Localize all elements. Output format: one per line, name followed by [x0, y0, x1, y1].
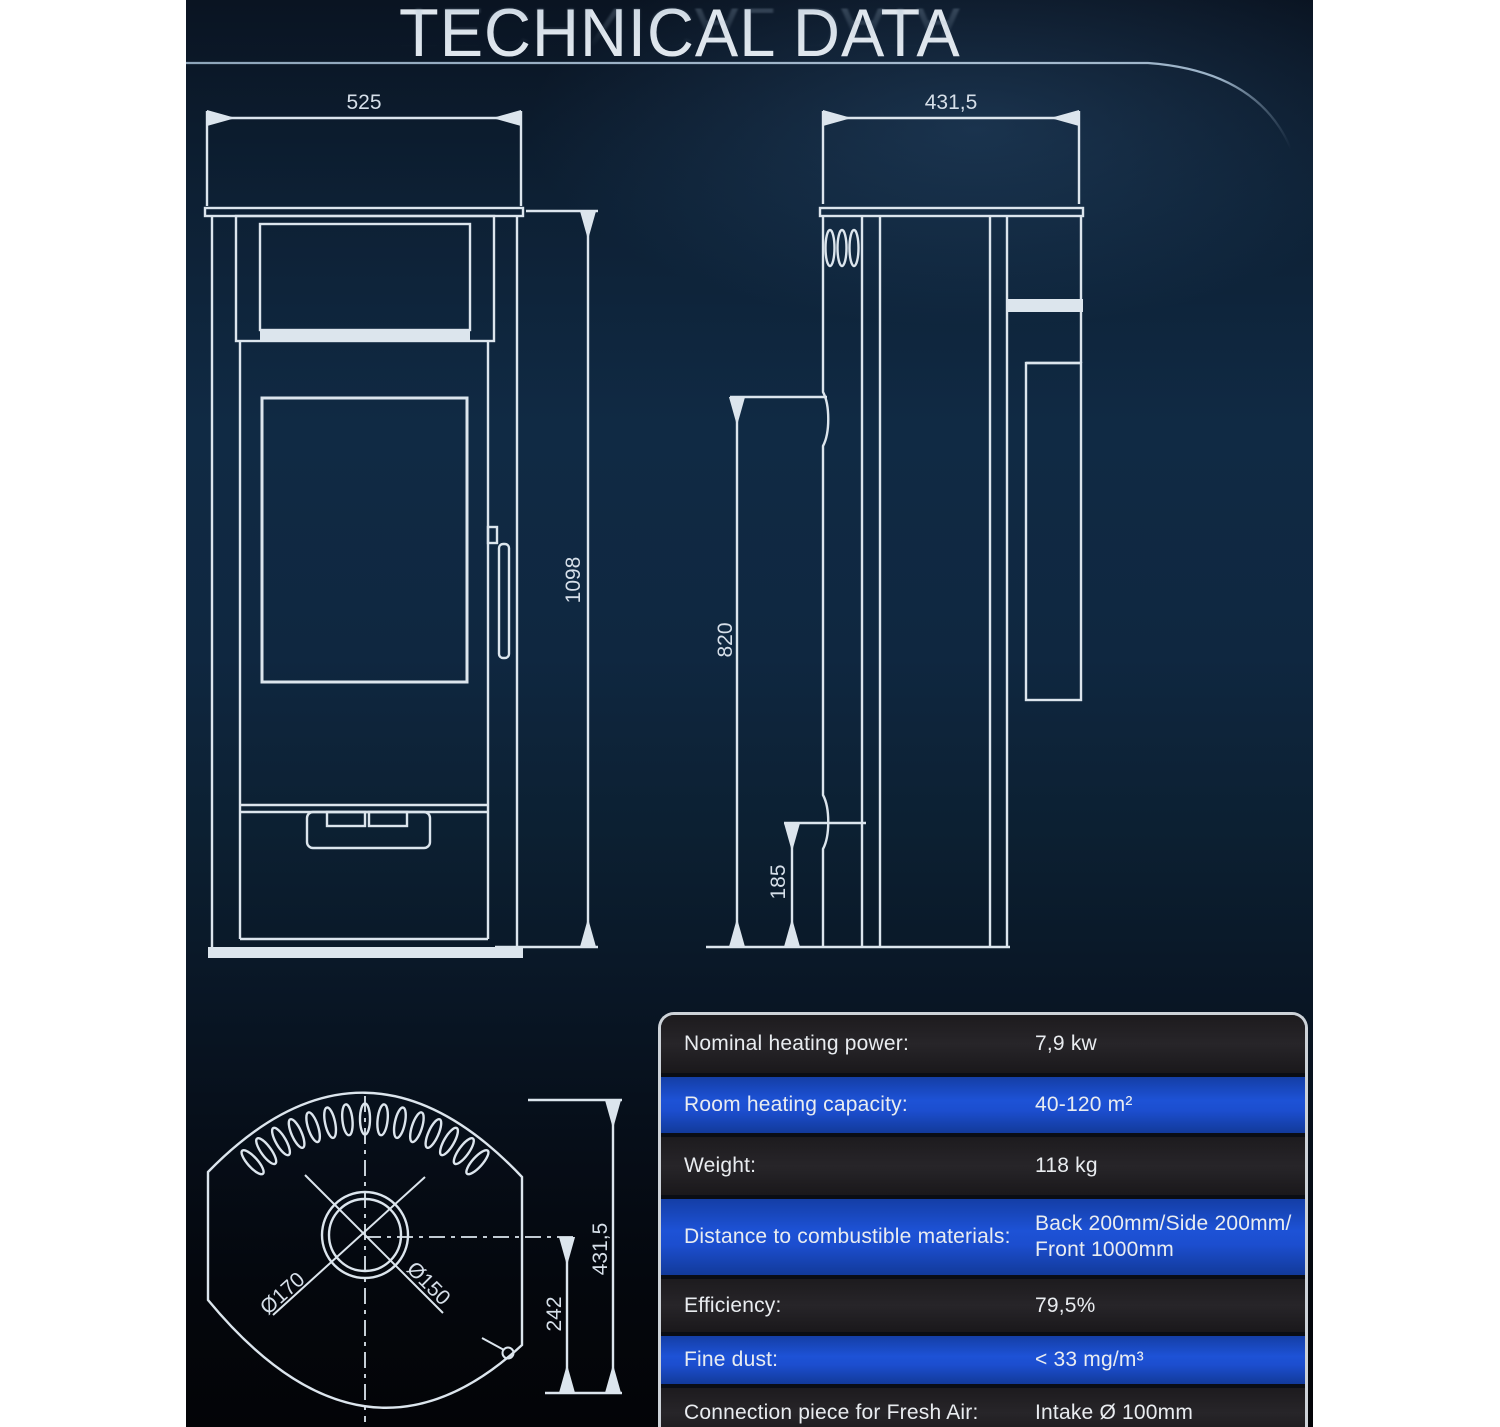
- row-value: 7,9 kw: [1035, 1031, 1097, 1057]
- side-upper-dimension: 820: [714, 622, 738, 657]
- side-lower-dimension: 185: [767, 864, 791, 899]
- row-value-line2: Front 1000mm: [1035, 1237, 1292, 1263]
- row-label: Room heating capacity:: [661, 1093, 908, 1117]
- row-label: Nominal heating power:: [661, 1032, 909, 1056]
- table-row: Distance to combustible materials: Back …: [661, 1199, 1305, 1279]
- top-view-drawing: [208, 1093, 622, 1422]
- spec-table: Nominal heating power: 7,9 kw Room heati…: [658, 1012, 1308, 1427]
- row-label: Distance to combustible materials:: [661, 1225, 1011, 1249]
- front-height-dimension: 1098: [562, 557, 586, 604]
- row-label: Weight:: [661, 1154, 756, 1178]
- table-row: Nominal heating power: 7,9 kw: [661, 1015, 1305, 1077]
- row-label: Connection piece for Fresh Air:: [661, 1401, 979, 1425]
- top-offset-dimension: 242: [543, 1296, 567, 1331]
- table-row: Room heating capacity: 40-120 m²: [661, 1077, 1305, 1137]
- front-view-drawing: [205, 111, 598, 958]
- table-row: Weight: 118 kg: [661, 1137, 1305, 1199]
- row-value: Intake Ø 100mm: [1035, 1400, 1193, 1426]
- front-width-dimension: 525: [346, 91, 381, 115]
- row-value-line1: Back 200mm/Side 200mm/: [1035, 1211, 1292, 1237]
- row-value: Back 200mm/Side 200mm/Front 1000mm: [1035, 1211, 1292, 1263]
- row-value: 118 kg: [1035, 1153, 1098, 1179]
- row-label: Fine dust:: [661, 1348, 778, 1372]
- side-depth-dimension: 431,5: [925, 91, 978, 115]
- page: TECHNICAL DATA TECHNICAL DATA: [0, 0, 1500, 1427]
- side-view-drawing: [706, 111, 1083, 947]
- top-depth-dimension: 431,5: [589, 1223, 613, 1276]
- row-label: Efficiency:: [661, 1294, 782, 1318]
- table-row: Fine dust: < 33 mg/m³: [661, 1336, 1305, 1388]
- row-value: 40-120 m²: [1035, 1092, 1133, 1118]
- row-value: 79,5%: [1035, 1293, 1096, 1319]
- row-value: < 33 mg/m³: [1035, 1347, 1144, 1373]
- table-row: Efficiency: 79,5%: [661, 1279, 1305, 1336]
- table-row: Connection piece for Fresh Air: Intake Ø…: [661, 1388, 1305, 1427]
